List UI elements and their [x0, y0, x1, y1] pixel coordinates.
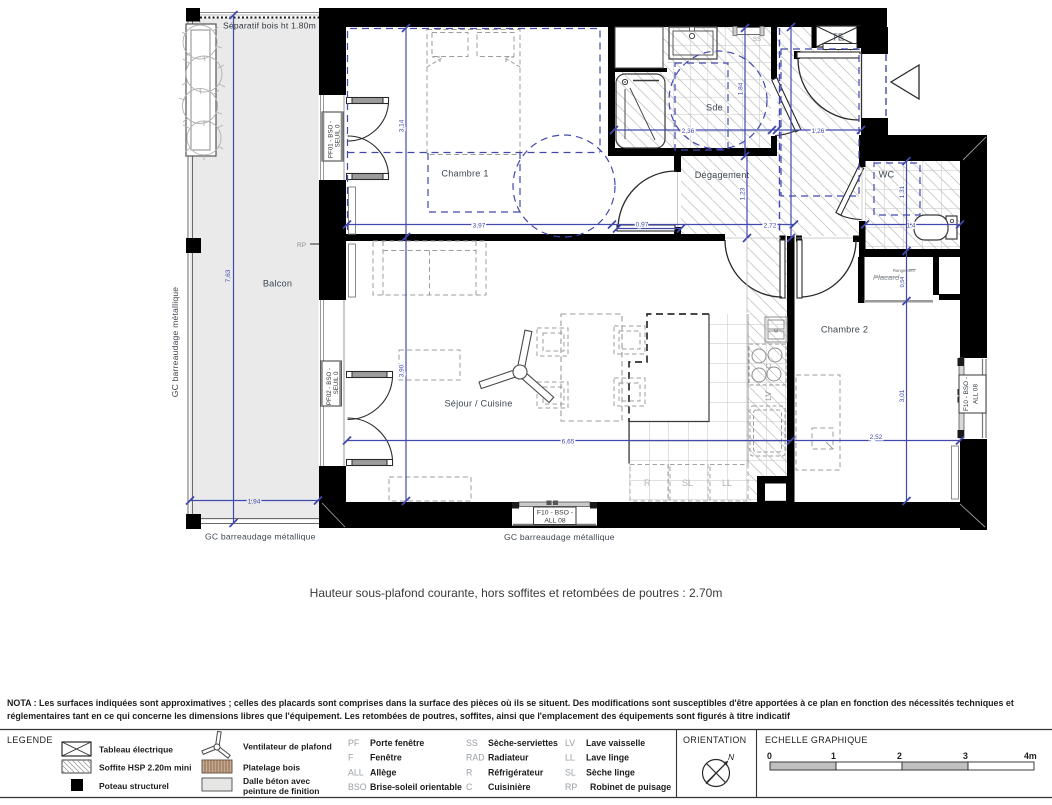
svg-text:Sèche-serviettes: Sèche-serviettes: [488, 738, 558, 748]
svg-text:RP: RP: [565, 782, 577, 792]
svg-text:ORIENTATION: ORIENTATION: [683, 735, 746, 745]
svg-text:Rangement: Rangement: [893, 268, 915, 273]
svg-text:Lave vaisselle: Lave vaisselle: [586, 738, 645, 748]
svg-text:Placard: Placard: [873, 273, 900, 282]
svg-text:7,63: 7,63: [225, 269, 232, 282]
svg-text:1,26: 1,26: [812, 128, 825, 135]
svg-text:6,65: 6,65: [562, 439, 575, 446]
svg-text:RAD: RAD: [466, 753, 485, 763]
svg-text:Poteau structurel: Poteau structurel: [99, 781, 169, 791]
svg-text:ECHELLE GRAPHIQUE: ECHELLE GRAPHIQUE: [765, 735, 868, 745]
svg-text:LV: LV: [763, 391, 773, 401]
svg-text:Tableau électrique: Tableau électrique: [99, 745, 173, 755]
svg-text:Fenêtre: Fenêtre: [370, 753, 402, 763]
svg-text:LL: LL: [565, 753, 575, 763]
svg-text:GC barreaudage métallique: GC barreaudage métallique: [170, 287, 180, 398]
svg-text:R: R: [466, 768, 472, 778]
svg-text:3: 3: [963, 751, 968, 761]
svg-text:3,01: 3,01: [899, 389, 906, 402]
svg-text:3,90: 3,90: [399, 364, 406, 377]
svg-text:2,52: 2,52: [870, 434, 883, 441]
svg-text:3,14: 3,14: [399, 119, 406, 132]
svg-text:0,54: 0,54: [900, 277, 906, 288]
svg-text:Chambre 2: Chambre 2: [821, 325, 868, 335]
svg-text:Platelage bois: Platelage bois: [243, 763, 300, 773]
svg-text:SEUIL 0: SEUIL 0: [333, 371, 340, 394]
svg-text:LL: LL: [722, 478, 732, 488]
svg-text:C: C: [766, 363, 773, 368]
svg-text:1,4: 1,4: [906, 223, 915, 230]
svg-text:1,94: 1,94: [248, 499, 261, 506]
svg-text:1,31: 1,31: [899, 185, 906, 198]
svg-text:ALL 08: ALL 08: [973, 384, 980, 404]
svg-text:LEGENDE: LEGENDE: [7, 735, 53, 745]
svg-text:SS: SS: [753, 36, 761, 43]
svg-text:ALL 08: ALL 08: [544, 518, 566, 525]
svg-text:0: 0: [767, 751, 772, 761]
svg-text:Réfrigérateur: Réfrigérateur: [488, 768, 544, 778]
svg-text:4m: 4m: [1024, 751, 1037, 761]
svg-text:Brise-soleil orientable: Brise-soleil orientable: [370, 782, 462, 792]
svg-text:Soffite HSP 2.20m mini: Soffite HSP 2.20m mini: [99, 763, 191, 773]
svg-text:GC barreaudage métallique: GC barreaudage métallique: [205, 532, 316, 542]
svg-text:Séjour / Cuisine: Séjour / Cuisine: [444, 399, 512, 409]
svg-text:1,84: 1,84: [738, 82, 745, 95]
svg-text:RP: RP: [297, 242, 306, 249]
svg-text:Cuisinière: Cuisinière: [488, 782, 531, 792]
svg-text:Lave linge: Lave linge: [586, 753, 629, 763]
svg-text:NOTA : Les surfaces indiquées: NOTA : Les surfaces indiquées sont appro…: [7, 698, 1014, 708]
svg-text:Porte fenêtre: Porte fenêtre: [370, 738, 424, 748]
svg-text:N: N: [728, 752, 735, 762]
svg-text:GC barreaudage métallique: GC barreaudage métallique: [504, 532, 615, 542]
svg-text:1,23: 1,23: [740, 187, 747, 200]
svg-text:3,97: 3,97: [473, 223, 486, 230]
svg-text:ALL: ALL: [348, 768, 364, 778]
svg-text:Hauteur sous-plafond courante,: Hauteur sous-plafond courante, hors soff…: [310, 586, 723, 600]
svg-text:2,72: 2,72: [764, 223, 777, 230]
svg-text:Dalle béton avec: Dalle béton avec: [243, 776, 310, 786]
svg-text:F10 - BSO -: F10 - BSO -: [963, 377, 970, 411]
svg-text:PF02 - BSO -: PF02 - BSO -: [326, 368, 333, 405]
svg-text:WC: WC: [879, 170, 895, 180]
svg-text:2: 2: [897, 751, 902, 761]
svg-text:Allège: Allège: [370, 768, 397, 778]
svg-text:Ventilateur de plafond: Ventilateur de plafond: [243, 742, 332, 752]
svg-text:Séparatif bois ht 1.80m: Séparatif bois ht 1.80m: [223, 21, 316, 31]
svg-text:PF01 - BSO -: PF01 - BSO -: [328, 121, 335, 158]
svg-text:R: R: [644, 478, 651, 488]
svg-text:Sèche linge: Sèche linge: [586, 768, 635, 778]
svg-text:TE: TE: [832, 33, 845, 44]
svg-text:réglementaires tant en ce qui: réglementaires tant en ce qui concerne l…: [7, 711, 790, 721]
svg-text:BSO: BSO: [348, 782, 367, 792]
svg-text:Robinet de puisage: Robinet de puisage: [590, 782, 671, 792]
svg-text:PF: PF: [348, 738, 360, 748]
svg-text:F10 - BSO -: F10 - BSO -: [537, 510, 573, 517]
svg-text:2,36: 2,36: [682, 128, 695, 135]
svg-text:Balcon: Balcon: [263, 279, 292, 289]
svg-text:LV: LV: [565, 738, 575, 748]
svg-text:SL: SL: [565, 768, 576, 778]
svg-text:SL: SL: [682, 478, 693, 488]
svg-text:1: 1: [831, 751, 836, 761]
svg-text:Radiateur: Radiateur: [488, 753, 529, 763]
svg-text:peinture de finition: peinture de finition: [243, 786, 320, 796]
svg-text:SS: SS: [466, 738, 478, 748]
svg-text:Chambre 1: Chambre 1: [441, 169, 488, 179]
svg-text:SEUIL 0: SEUIL 0: [335, 124, 342, 147]
svg-text:F: F: [348, 753, 354, 763]
svg-text:Sde: Sde: [706, 103, 723, 113]
svg-text:C: C: [466, 782, 473, 792]
svg-text:Dégagement: Dégagement: [695, 170, 750, 180]
svg-text:0,97: 0,97: [636, 222, 649, 229]
